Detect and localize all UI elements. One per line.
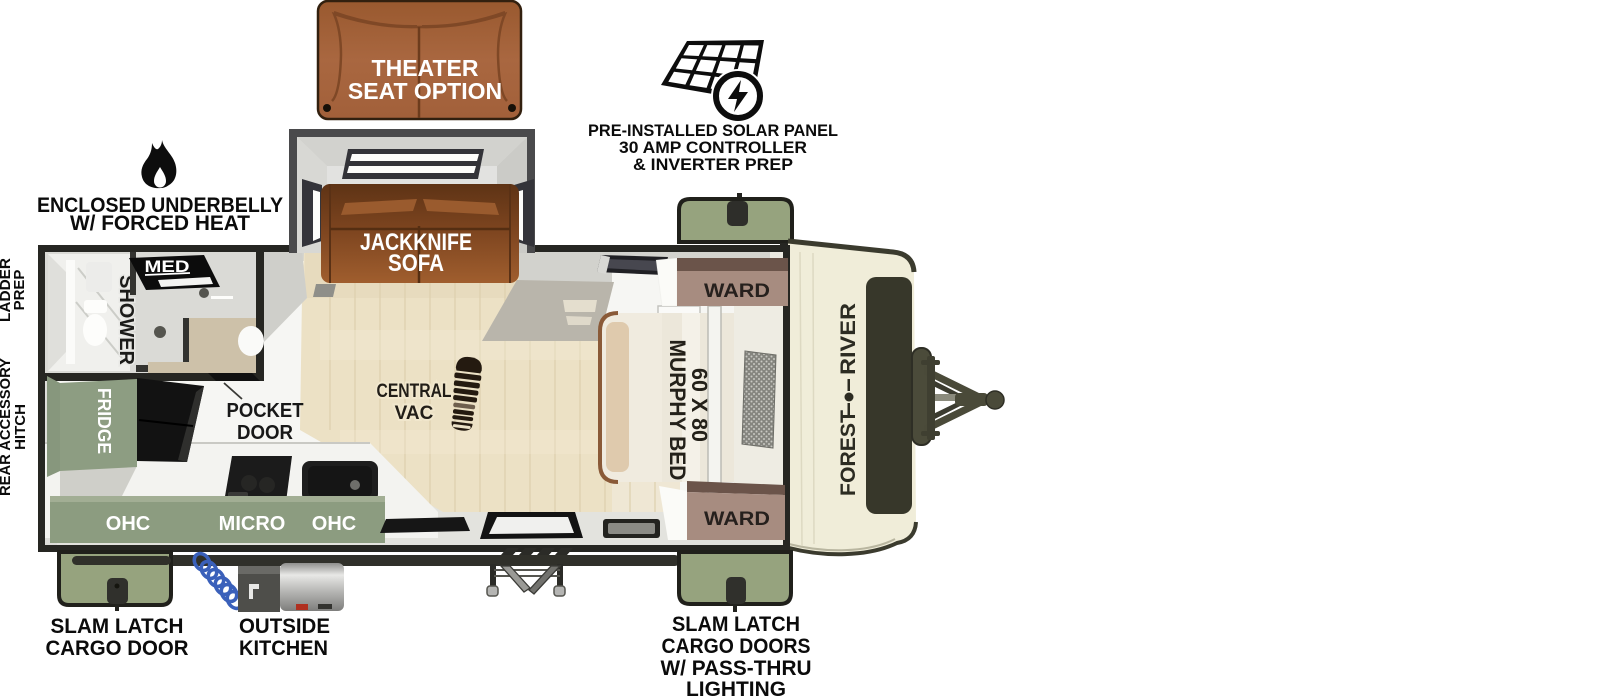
svg-text:& INVERTER PREP: & INVERTER PREP xyxy=(633,155,793,174)
svg-text:POCKET: POCKET xyxy=(227,400,304,422)
svg-text:VAC: VAC xyxy=(395,403,434,424)
svg-text:HITCH: HITCH xyxy=(12,404,29,450)
svg-text:OHC: OHC xyxy=(312,513,356,535)
svg-text:SLAM LATCH: SLAM LATCH xyxy=(51,615,184,638)
svg-text:MURPHY BED: MURPHY BED xyxy=(665,340,690,481)
svg-text:SLAM LATCH: SLAM LATCH xyxy=(672,613,800,636)
svg-text:W/ PASS-THRU: W/ PASS-THRU xyxy=(661,657,812,680)
svg-text:WARD: WARD xyxy=(704,509,770,530)
svg-text:SOFA: SOFA xyxy=(388,250,444,277)
svg-text:CARGO DOORS: CARGO DOORS xyxy=(662,635,811,658)
svg-text:CENTRAL: CENTRAL xyxy=(377,381,452,402)
svg-text:OUTSIDE: OUTSIDE xyxy=(239,615,330,638)
svg-text:FOREST: FOREST xyxy=(837,410,860,496)
svg-text:MICRO: MICRO xyxy=(219,513,286,535)
svg-text:W/ FORCED HEAT: W/ FORCED HEAT xyxy=(70,212,250,235)
svg-text:DOOR: DOOR xyxy=(237,422,294,444)
svg-text:SEAT OPTION: SEAT OPTION xyxy=(348,78,502,104)
svg-text:CARGO DOOR: CARGO DOOR xyxy=(46,637,189,660)
svg-text:PREP: PREP xyxy=(11,270,28,311)
svg-text:OHC: OHC xyxy=(106,513,150,535)
svg-text:WARD: WARD xyxy=(704,281,770,302)
svg-text:FRIDGE: FRIDGE xyxy=(94,388,114,454)
svg-text:RIVER: RIVER xyxy=(837,303,860,375)
svg-text:KITCHEN: KITCHEN xyxy=(239,637,328,660)
svg-text:LIGHTING: LIGHTING xyxy=(686,678,786,697)
